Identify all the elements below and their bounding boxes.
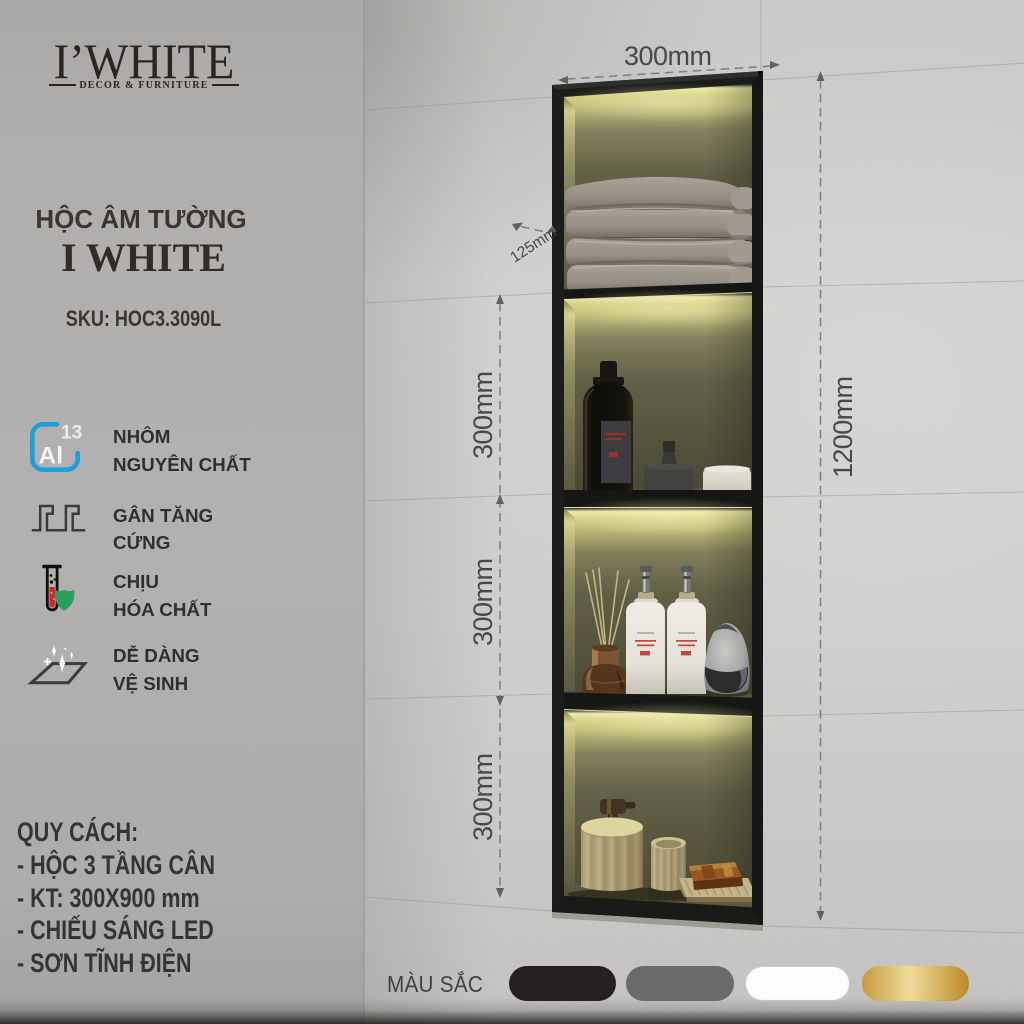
svg-text:13: 13 [61,423,82,444]
svg-text:Al: Al [39,443,64,470]
